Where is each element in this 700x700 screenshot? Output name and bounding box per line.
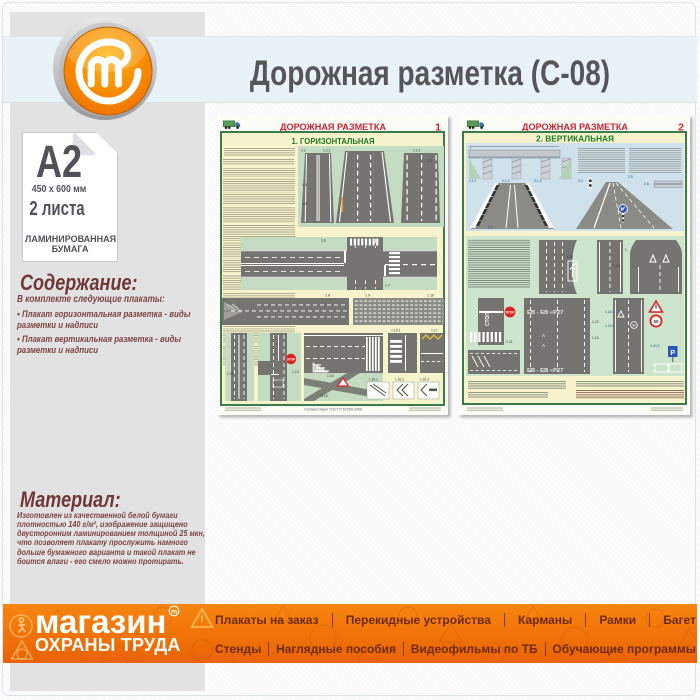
svg-text:50: 50 [632,324,636,328]
svg-text:EB - EB «P27: EB - EB «P27 [527,368,563,374]
svg-text:1. ГОРИЗОНТАЛЬНАЯ: 1. ГОРИЗОНТАЛЬНАЯ [292,137,375,146]
svg-text:2.7: 2.7 [488,226,493,230]
svg-text:1.10: 1.10 [427,294,434,298]
svg-text:1.9: 1.9 [365,294,370,298]
svg-text:1.13: 1.13 [327,374,334,378]
svg-text:2.5: 2.5 [628,175,633,179]
svg-text:2. ВЕРТИКАЛЬНАЯ: 2. ВЕРТИКАЛЬНАЯ [536,135,614,144]
svg-text:A: A [542,343,545,348]
svg-text:1.4: 1.4 [302,183,307,187]
svg-text:1.17: 1.17 [431,329,438,333]
svg-text:P: P [670,350,675,357]
svg-text:A: A [542,333,545,338]
svg-text:СТОП: СТОП [485,312,491,326]
svg-text:ДОРОЖНАЯ РАЗМЕТКА: ДОРОЖНАЯ РАЗМЕТКА [522,122,628,132]
svg-text:1.15: 1.15 [321,394,328,398]
svg-text:1.2.2: 1.2.2 [413,148,421,152]
svg-text:50: 50 [653,319,659,324]
svg-text:1.23: 1.23 [592,336,599,340]
svg-text:2.1.1: 2.1.1 [469,179,477,183]
svg-text:2.6: 2.6 [644,182,649,186]
svg-text:EB - EB «P27: EB - EB «P27 [527,310,563,316]
svg-text:1.24.2: 1.24.2 [605,324,615,328]
svg-text:Соответствует ГОСТ Р 52289-200: Соответствует ГОСТ Р 52289-2004 [304,408,362,412]
svg-text:1.5: 1.5 [427,159,432,163]
svg-text:m: m [171,608,177,615]
svg-text:1.16.1: 1.16.1 [369,378,378,382]
svg-text:STOP: STOP [287,358,296,362]
svg-text:2.1.3: 2.1.3 [534,179,542,183]
svg-text:1.20: 1.20 [613,264,620,268]
svg-text:ДОРОЖНАЯ РАЗМЕТКА: ДОРОЖНАЯ РАЗМЕТКА [280,122,386,132]
svg-text:1.6: 1.6 [321,239,326,243]
svg-text:1.11: 1.11 [227,372,233,376]
svg-text:2.1.2: 2.1.2 [502,179,510,183]
svg-text:1.2.1: 1.2.1 [323,148,331,152]
svg-text:1.21: 1.21 [506,340,513,344]
svg-text:1.22: 1.22 [592,320,599,324]
svg-text:1.8: 1.8 [325,294,330,298]
svg-text:1.5: 1.5 [302,202,307,206]
svg-text:2.4: 2.4 [578,179,583,183]
svg-text:1.18: 1.18 [566,255,573,259]
svg-text:1.24.3: 1.24.3 [650,344,660,348]
svg-text:1.16.2: 1.16.2 [395,378,404,382]
svg-text:1.7: 1.7 [385,284,390,288]
svg-text:1.1: 1.1 [301,148,306,152]
svg-text:1.24.1: 1.24.1 [605,310,615,314]
svg-text:1.16.3: 1.16.3 [420,378,429,382]
svg-text:1.14.1: 1.14.1 [391,329,401,333]
svg-text:STOP: STOP [505,311,515,315]
svg-text:1.12: 1.12 [292,370,299,374]
